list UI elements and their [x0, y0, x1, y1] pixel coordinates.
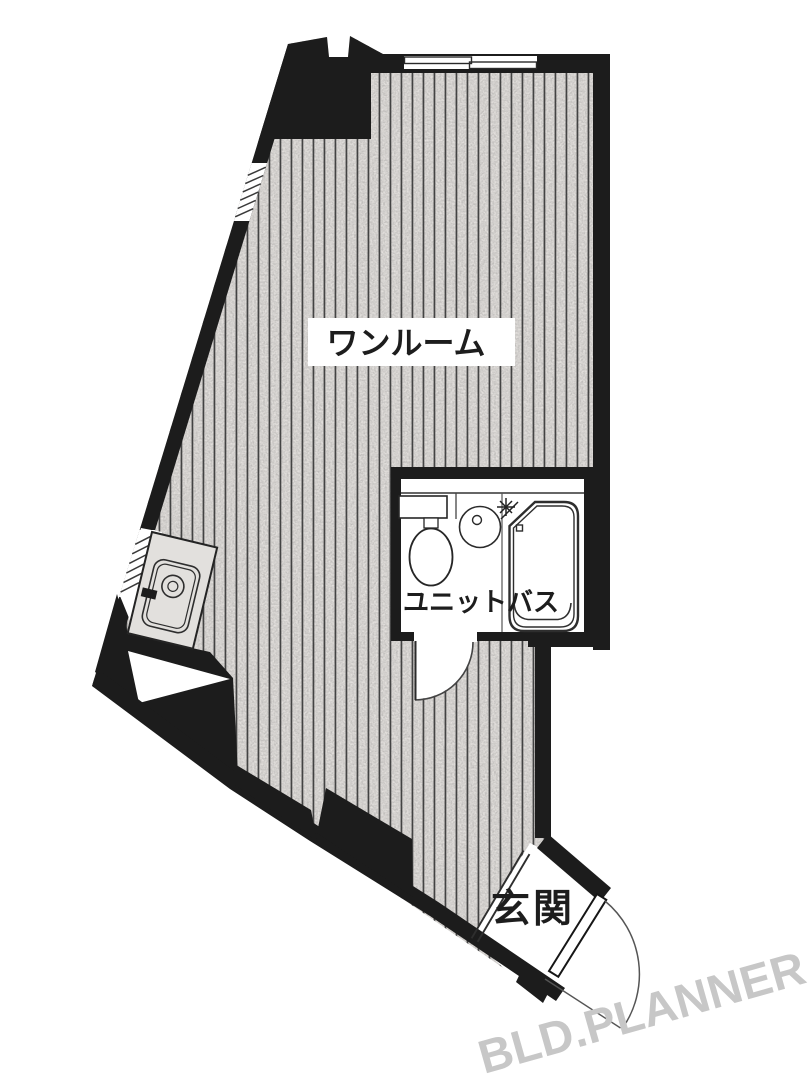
svg-text:ワンルーム: ワンルーム: [326, 325, 485, 361]
svg-text:玄関: 玄関: [491, 888, 575, 931]
svg-text:ユニットバス: ユニットバス: [403, 587, 559, 617]
